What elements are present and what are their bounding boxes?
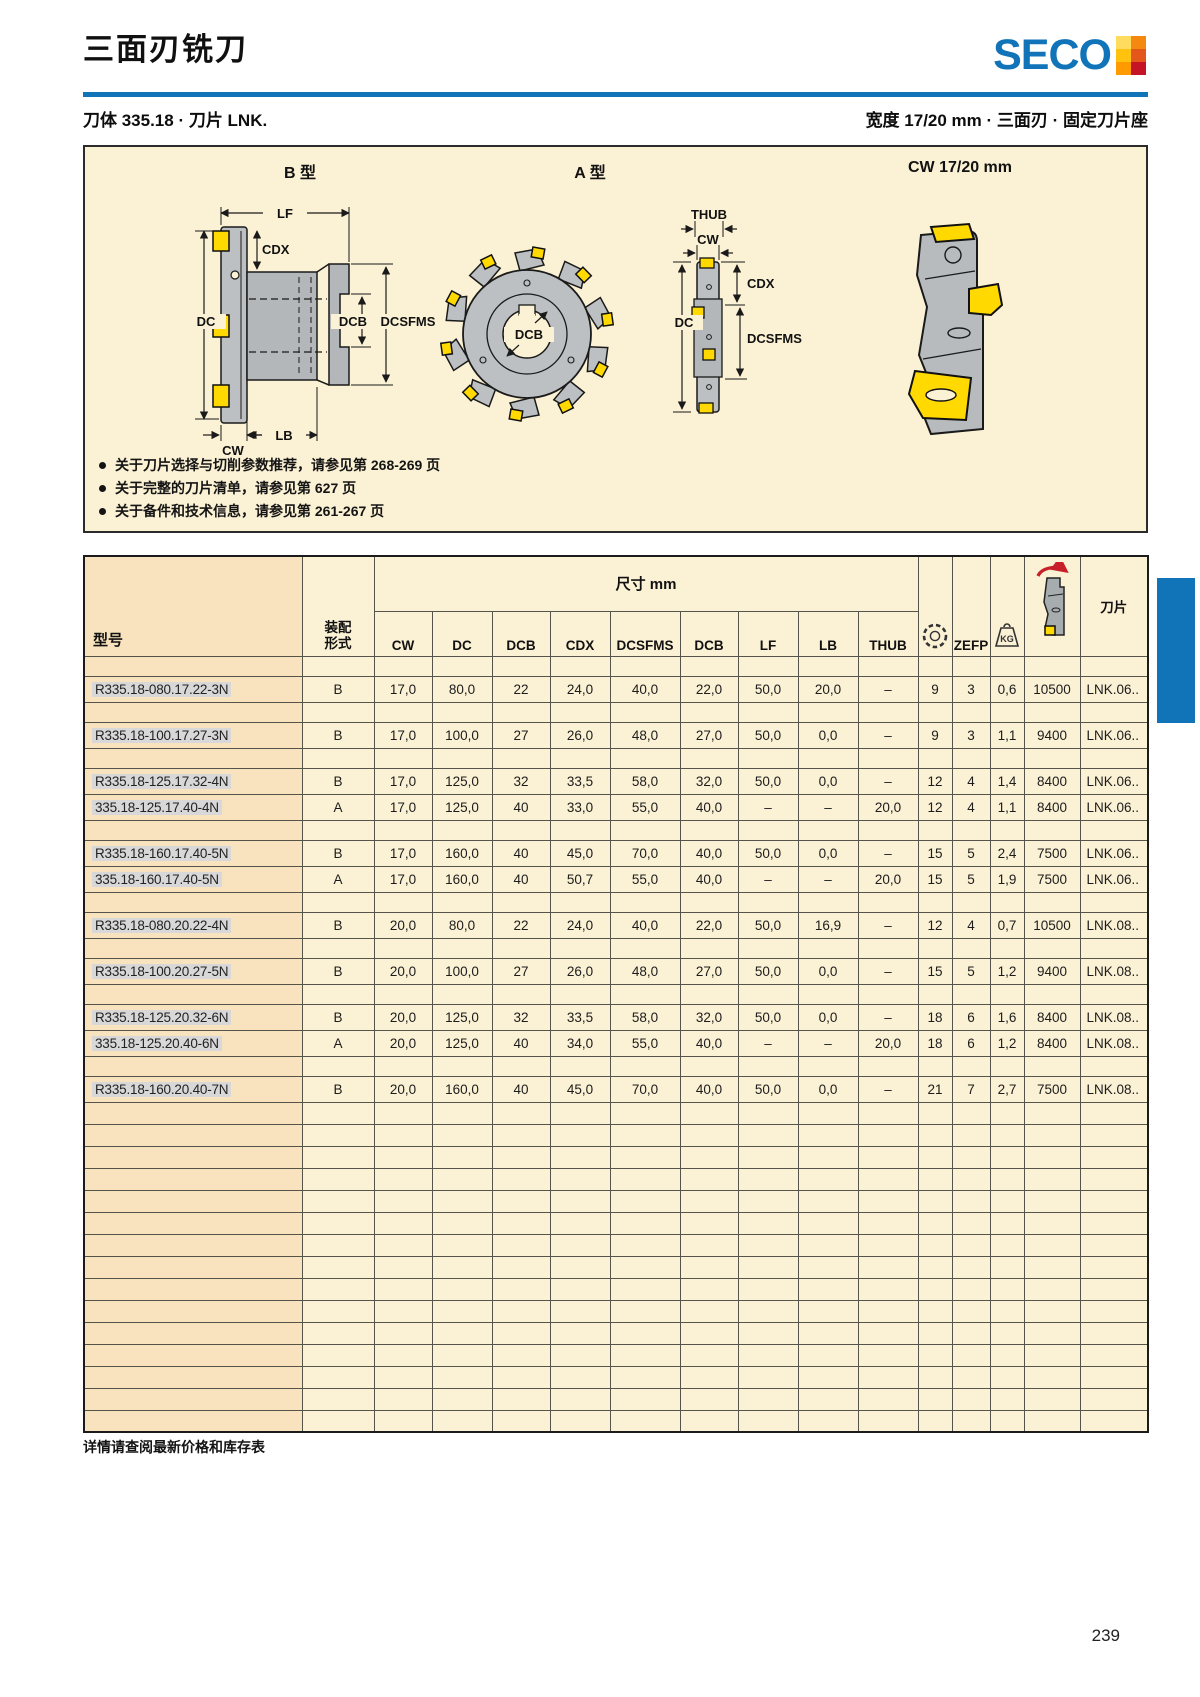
empty-cell [738, 1234, 798, 1256]
empty-cell [1024, 1146, 1080, 1168]
empty-cell [550, 1124, 610, 1146]
empty-cell [918, 938, 952, 958]
dim-thub-cell: – [858, 1076, 918, 1102]
dim-lf-label: LF [263, 206, 307, 221]
model-cell: R335.18-100.20.27-5N [84, 958, 302, 984]
empty-cell [798, 938, 858, 958]
empty-cell [798, 1278, 858, 1300]
table-row: R335.18-080.17.22-3NB17,080,02224,040,02… [84, 676, 1148, 702]
empty-cell [858, 1190, 918, 1212]
empty-cell [550, 1256, 610, 1278]
empty-cell [1080, 1366, 1148, 1388]
dim-dcsfms-cell: 58,0 [610, 1004, 680, 1030]
dim-lf-cell: 50,0 [738, 840, 798, 866]
empty-cell [302, 984, 374, 1004]
empty-row [84, 656, 1148, 676]
table-row: R335.18-160.17.40-5NB17,0160,04045,070,0… [84, 840, 1148, 866]
empty-cell [918, 1388, 952, 1410]
empty-cell [432, 1388, 492, 1410]
empty-cell [84, 1366, 302, 1388]
empty-cell [990, 938, 1024, 958]
empty-cell [858, 1344, 918, 1366]
dim-lb-cell: 0,0 [798, 958, 858, 984]
empty-cell [1024, 1388, 1080, 1410]
dim-dcsfms-label: DCSFMS [373, 314, 443, 329]
dim-cdx-cell: 45,0 [550, 1076, 610, 1102]
dim-dcb2-cell: 40,0 [680, 1030, 738, 1056]
zefp-cell: 7 [952, 1076, 990, 1102]
empty-cell [84, 1278, 302, 1300]
empty-cell [610, 1366, 680, 1388]
empty-cell [432, 820, 492, 840]
dim-thub-cell: 20,0 [858, 866, 918, 892]
empty-cell [1080, 1322, 1148, 1344]
empty-row [84, 938, 1148, 958]
brand-mark-tile [1116, 62, 1131, 75]
empty-cell [798, 1410, 858, 1432]
weight-header: KG [990, 556, 1024, 656]
dim-dcsfms-cell: 55,0 [610, 794, 680, 820]
empty-cell [374, 892, 432, 912]
dim-lb-cell: 20,0 [798, 676, 858, 702]
empty-cell [952, 1234, 990, 1256]
dim-lf-cell: 50,0 [738, 1076, 798, 1102]
dim-dc-cell: 80,0 [432, 912, 492, 938]
empty-row [84, 1256, 1148, 1278]
empty-cell [798, 702, 858, 722]
empty-cell [1080, 892, 1148, 912]
dim-dc-cell: 160,0 [432, 840, 492, 866]
empty-cell [952, 1102, 990, 1124]
dim-lb-cell: – [798, 866, 858, 892]
empty-cell [610, 1212, 680, 1234]
subheader-left: 刀体 335.18 · 刀片 LNK. [83, 106, 267, 131]
note-text: 关于备件和技术信息，请参见第 261-267 页 [115, 501, 384, 521]
empty-cell [492, 1300, 550, 1322]
table-row: 335.18-160.17.40-5NA17,0160,04050,755,04… [84, 866, 1148, 892]
dim-dcb-cell: 27 [492, 722, 550, 748]
empty-cell [302, 1056, 374, 1076]
empty-cell [302, 892, 374, 912]
col-header-insert: 刀片 [1080, 556, 1148, 656]
empty-cell [858, 1212, 918, 1234]
empty-cell [1024, 1256, 1080, 1278]
insert-cell: LNK.08.. [1080, 912, 1148, 938]
empty-cell [738, 1278, 798, 1300]
model-number: R335.18-100.17.27-3N [92, 728, 231, 743]
empty-cell [990, 1124, 1024, 1146]
empty-cell [990, 1278, 1024, 1300]
empty-cell [1024, 1278, 1080, 1300]
empty-cell [858, 1410, 918, 1432]
dim-front-dcb-label: DCB [504, 327, 554, 342]
dim-cdx-cell: 50,7 [550, 866, 610, 892]
dim-dcb-label: DCB [331, 314, 375, 329]
empty-cell [374, 1278, 432, 1300]
dim-lb-cell: – [798, 1030, 858, 1056]
dim-side-cw-label: CW [686, 233, 730, 246]
empty-cell [798, 1056, 858, 1076]
empty-cell [84, 1212, 302, 1234]
weight-cell: 1,4 [990, 768, 1024, 794]
empty-cell [990, 1146, 1024, 1168]
empty-cell [374, 1234, 432, 1256]
weight-cell: 1,2 [990, 958, 1024, 984]
model-number: R335.18-080.20.22-4N [92, 918, 231, 933]
empty-cell [1080, 1168, 1148, 1190]
model-cell: R335.18-160.20.40-7N [84, 1076, 302, 1102]
weight-cell: 0,6 [990, 676, 1024, 702]
empty-cell [432, 1234, 492, 1256]
col-group-dimensions: 尺寸 mm [374, 556, 918, 611]
empty-cell [432, 656, 492, 676]
empty-cell [738, 702, 798, 722]
dim-cdx-cell: 24,0 [550, 676, 610, 702]
empty-cell [990, 1344, 1024, 1366]
empty-cell [550, 1146, 610, 1168]
empty-cell [550, 1366, 610, 1388]
empty-cell [1080, 984, 1148, 1004]
empty-cell [374, 1344, 432, 1366]
empty-cell [302, 1234, 374, 1256]
empty-cell [610, 820, 680, 840]
model-cell: 335.18-125.17.40-4N [84, 794, 302, 820]
empty-row [84, 892, 1148, 912]
empty-cell [738, 748, 798, 768]
dim-lf-cell: 50,0 [738, 1004, 798, 1030]
empty-cell [858, 984, 918, 1004]
dim-lb-cell: 0,0 [798, 768, 858, 794]
empty-cell [492, 1410, 550, 1432]
empty-cell [738, 1322, 798, 1344]
empty-cell [302, 702, 374, 722]
empty-cell [1080, 1102, 1148, 1124]
empty-cell [990, 1234, 1024, 1256]
label-cw-size: CW 17/20 mm [880, 159, 1040, 177]
empty-cell [798, 1388, 858, 1410]
brand-logo-mark-icon [1116, 36, 1146, 75]
insert-cell: LNK.06.. [1080, 840, 1148, 866]
empty-cell [1024, 1410, 1080, 1432]
empty-cell [952, 702, 990, 722]
note-item: 关于刀片选择与切削参数推荐，请参见第 268-269 页 [99, 455, 440, 475]
empty-cell [432, 1278, 492, 1300]
empty-row [84, 1322, 1148, 1344]
weight-cell: 2,7 [990, 1076, 1024, 1102]
note-text: 关于刀片选择与切削参数推荐，请参见第 268-269 页 [115, 455, 440, 475]
empty-cell [374, 1146, 432, 1168]
empty-cell [680, 1146, 738, 1168]
empty-cell [1080, 656, 1148, 676]
empty-cell [550, 1168, 610, 1190]
empty-cell [374, 1102, 432, 1124]
dim-cw-cell: 17,0 [374, 722, 432, 748]
empty-cell [1024, 1168, 1080, 1190]
empty-cell [610, 656, 680, 676]
empty-cell [610, 1124, 680, 1146]
empty-cell [680, 938, 738, 958]
model-cell: R335.18-080.17.22-3N [84, 676, 302, 702]
empty-cell [798, 1212, 858, 1234]
mount-cell: B [302, 958, 374, 984]
empty-cell [918, 1124, 952, 1146]
empty-cell [680, 984, 738, 1004]
col-header-cdx: CDX [550, 611, 610, 656]
empty-cell [550, 1278, 610, 1300]
model-cell: R335.18-160.17.40-5N [84, 840, 302, 866]
empty-cell [952, 1056, 990, 1076]
empty-cell [918, 1190, 952, 1212]
dim-dcb2-cell: 40,0 [680, 866, 738, 892]
empty-cell [738, 1146, 798, 1168]
empty-cell [918, 1322, 952, 1344]
dim-side-dc-label: DC [665, 315, 703, 330]
empty-cell [952, 1146, 990, 1168]
empty-cell [374, 1124, 432, 1146]
empty-cell [610, 938, 680, 958]
empty-cell [918, 820, 952, 840]
empty-cell [1080, 1212, 1148, 1234]
empty-cell [1080, 1190, 1148, 1212]
max-rpm-cell: 7500 [1024, 1076, 1080, 1102]
empty-cell [492, 1256, 550, 1278]
empty-cell [952, 1300, 990, 1322]
empty-cell [84, 748, 302, 768]
dim-cdx-cell: 33,5 [550, 1004, 610, 1030]
dim-dcb-cell: 32 [492, 768, 550, 794]
empty-cell [680, 1256, 738, 1278]
empty-cell [680, 1278, 738, 1300]
empty-cell [374, 1366, 432, 1388]
empty-cell [610, 984, 680, 1004]
zefp-cell: 6 [952, 1030, 990, 1056]
max-rpm-header [1024, 556, 1080, 656]
empty-cell [798, 1102, 858, 1124]
insert-cell: LNK.06.. [1080, 866, 1148, 892]
empty-cell [798, 1124, 858, 1146]
empty-cell [738, 1212, 798, 1234]
empty-cell [952, 1256, 990, 1278]
empty-cell [798, 1190, 858, 1212]
empty-cell [858, 1278, 918, 1300]
empty-cell [680, 1212, 738, 1234]
dim-lf-cell: – [738, 866, 798, 892]
empty-cell [738, 1056, 798, 1076]
catalog-page: 三面刃铣刀 SECO 刀体 335.18 · 刀片 LNK. 宽度 17/20 … [0, 0, 1200, 1697]
dim-dcsfms-cell: 55,0 [610, 866, 680, 892]
empty-cell [432, 892, 492, 912]
max-rpm-cell: 8400 [1024, 794, 1080, 820]
empty-cell [1024, 1234, 1080, 1256]
page-title: 三面刃铣刀 [83, 24, 248, 69]
dim-thub-label: THUB [683, 208, 735, 221]
empty-cell [302, 748, 374, 768]
empty-cell [858, 1168, 918, 1190]
table-row: 335.18-125.20.40-6NA20,0125,04034,055,04… [84, 1030, 1148, 1056]
dim-dcb-cell: 27 [492, 958, 550, 984]
dim-lb-cell: 0,0 [798, 840, 858, 866]
dim-thub-cell: – [858, 722, 918, 748]
col-header-lb: LB [798, 611, 858, 656]
empty-cell [858, 820, 918, 840]
empty-cell [550, 1388, 610, 1410]
empty-cell [492, 656, 550, 676]
insert-cell: LNK.06.. [1080, 676, 1148, 702]
empty-cell [492, 748, 550, 768]
empty-cell [680, 656, 738, 676]
dim-lf-cell: 50,0 [738, 958, 798, 984]
empty-cell [610, 1234, 680, 1256]
empty-cell [432, 748, 492, 768]
empty-cell [610, 1344, 680, 1366]
empty-cell [84, 1344, 302, 1366]
empty-row [84, 1278, 1148, 1300]
empty-cell [918, 1366, 952, 1388]
empty-cell [84, 1410, 302, 1432]
dim-thub-cell: – [858, 768, 918, 794]
dim-cdx-cell: 33,5 [550, 768, 610, 794]
empty-cell [990, 1102, 1024, 1124]
dim-cdx-cell: 45,0 [550, 840, 610, 866]
empty-cell [1024, 1190, 1080, 1212]
empty-cell [990, 892, 1024, 912]
footer-note: 详情请查阅最新价格和库存表 [83, 1437, 265, 1457]
empty-cell [738, 1168, 798, 1190]
page-number: 239 [1020, 1626, 1120, 1646]
weight-kg-icon: KG [992, 620, 1022, 650]
empty-cell [952, 1168, 990, 1190]
dim-dcsfms-cell: 70,0 [610, 840, 680, 866]
empty-cell [84, 1146, 302, 1168]
empty-cell [1024, 1322, 1080, 1344]
dim-thub-cell: – [858, 958, 918, 984]
empty-cell [680, 1410, 738, 1432]
empty-cell [738, 1410, 798, 1432]
empty-cell [432, 1366, 492, 1388]
empty-cell [84, 1190, 302, 1212]
empty-cell [918, 1146, 952, 1168]
empty-cell [550, 984, 610, 1004]
insert-cell: LNK.06.. [1080, 768, 1148, 794]
teeth-count-cell: 18 [918, 1030, 952, 1056]
empty-cell [1024, 1344, 1080, 1366]
col-header-dcb2: DCB [680, 611, 738, 656]
empty-cell [680, 892, 738, 912]
model-number: 335.18-160.17.40-5N [92, 872, 222, 887]
empty-cell [798, 1168, 858, 1190]
empty-cell [798, 1146, 858, 1168]
empty-cell [990, 1168, 1024, 1190]
section-side-tab [1157, 578, 1195, 723]
dim-dcsfms-cell: 70,0 [610, 1076, 680, 1102]
empty-cell [952, 1410, 990, 1432]
empty-cell [492, 892, 550, 912]
empty-cell [858, 892, 918, 912]
empty-cell [680, 702, 738, 722]
empty-cell [550, 1212, 610, 1234]
empty-cell [952, 656, 990, 676]
dim-lf-cell: 50,0 [738, 912, 798, 938]
dim-cw-cell: 17,0 [374, 794, 432, 820]
model-number: 335.18-125.20.40-6N [92, 1036, 222, 1051]
zefp-cell: 4 [952, 794, 990, 820]
empty-cell [84, 1322, 302, 1344]
dim-thub-cell: – [858, 1004, 918, 1030]
empty-cell [374, 748, 432, 768]
empty-row [84, 1146, 1148, 1168]
empty-cell [858, 1366, 918, 1388]
empty-cell [84, 820, 302, 840]
teeth-count-cell: 21 [918, 1076, 952, 1102]
empty-cell [680, 1388, 738, 1410]
dim-cw-cell: 17,0 [374, 676, 432, 702]
insert-cell: LNK.08.. [1080, 1030, 1148, 1056]
dim-cdx-label: CDX [262, 243, 306, 256]
empty-cell [84, 1124, 302, 1146]
zefp-cell: 3 [952, 676, 990, 702]
dim-cw-cell: 20,0 [374, 1076, 432, 1102]
mount-cell: B [302, 912, 374, 938]
dim-dcb-cell: 22 [492, 676, 550, 702]
empty-cell [798, 656, 858, 676]
empty-cell [858, 1102, 918, 1124]
empty-cell [918, 1168, 952, 1190]
empty-cell [550, 702, 610, 722]
empty-cell [738, 656, 798, 676]
label-b-type: B 型 [255, 159, 345, 183]
empty-cell [374, 1300, 432, 1322]
label-a-type: A 型 [545, 159, 635, 183]
empty-cell [492, 1388, 550, 1410]
empty-cell [680, 1366, 738, 1388]
empty-cell [302, 1212, 374, 1234]
empty-cell [302, 656, 374, 676]
empty-cell [858, 938, 918, 958]
empty-cell [918, 748, 952, 768]
empty-cell [432, 1102, 492, 1124]
dim-dcsfms-cell: 40,0 [610, 676, 680, 702]
col-header-cw: CW [374, 611, 432, 656]
empty-cell [952, 1212, 990, 1234]
empty-row [84, 1234, 1148, 1256]
empty-cell [432, 1190, 492, 1212]
dim-thub-cell: 20,0 [858, 794, 918, 820]
empty-cell [432, 1300, 492, 1322]
empty-cell [858, 1056, 918, 1076]
teeth-count-cell: 18 [918, 1004, 952, 1030]
dim-dcb2-cell: 40,0 [680, 1076, 738, 1102]
empty-cell [432, 938, 492, 958]
model-cell: R335.18-125.20.32-6N [84, 1004, 302, 1030]
empty-cell [302, 1344, 374, 1366]
dim-dcb-cell: 40 [492, 1030, 550, 1056]
empty-cell [374, 820, 432, 840]
empty-row [84, 984, 1148, 1004]
empty-cell [680, 748, 738, 768]
empty-cell [610, 1300, 680, 1322]
dim-thub-cell: 20,0 [858, 1030, 918, 1056]
empty-cell [952, 1322, 990, 1344]
empty-cell [1024, 1212, 1080, 1234]
header-rule [83, 92, 1148, 97]
insert-cell: LNK.08.. [1080, 958, 1148, 984]
teeth-count-cell: 12 [918, 768, 952, 794]
model-cell: R335.18-080.20.22-4N [84, 912, 302, 938]
dim-lb-cell: 0,0 [798, 722, 858, 748]
empty-cell [1080, 938, 1148, 958]
dim-dc-cell: 160,0 [432, 1076, 492, 1102]
empty-cell [374, 938, 432, 958]
